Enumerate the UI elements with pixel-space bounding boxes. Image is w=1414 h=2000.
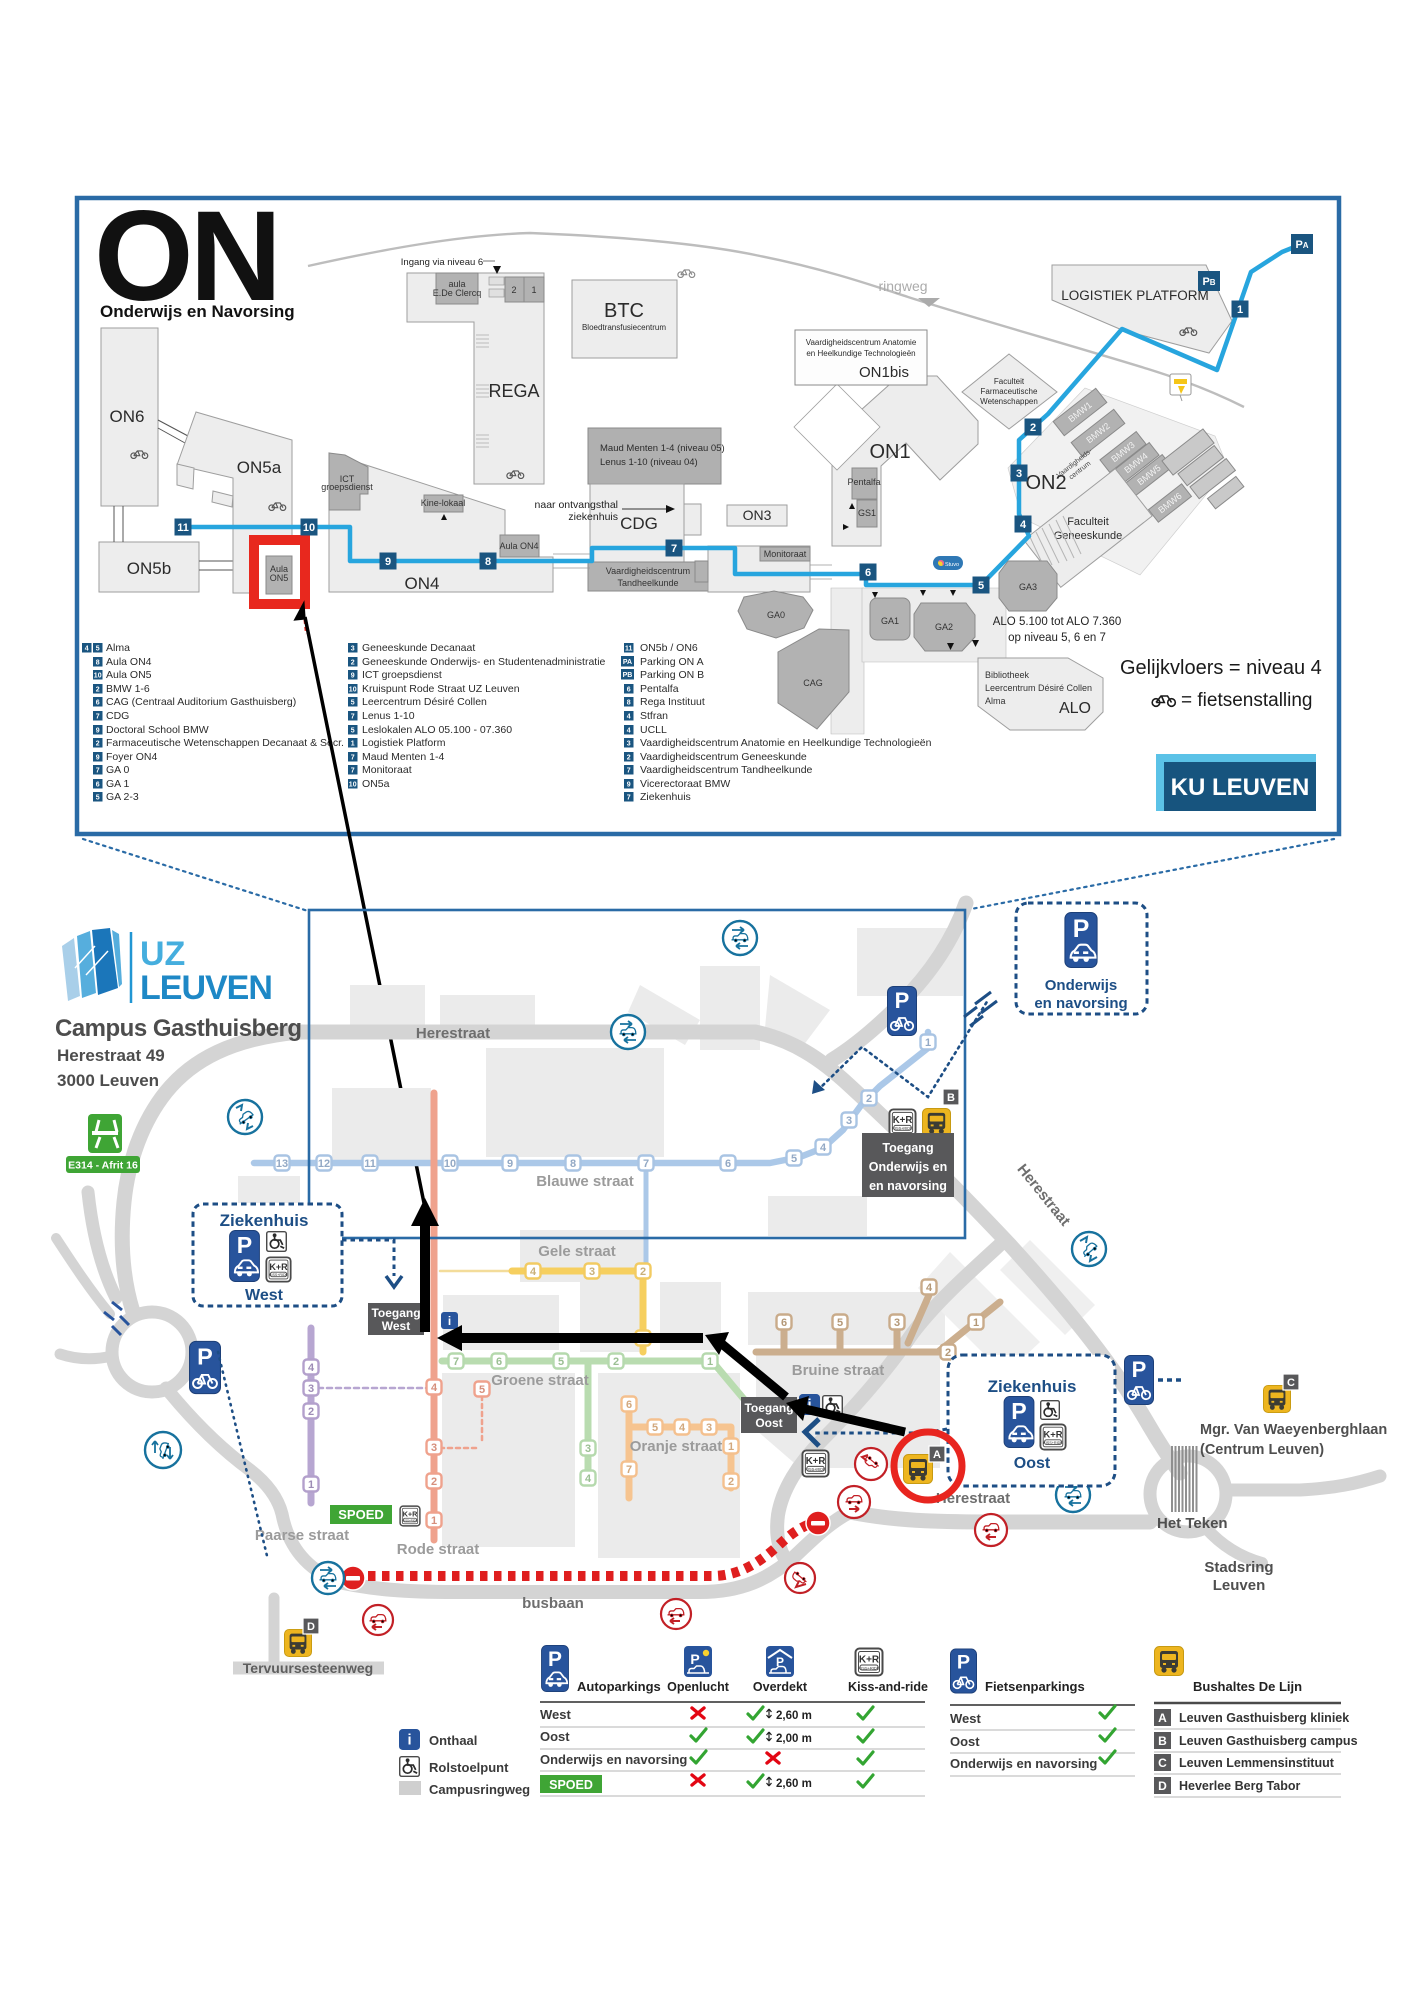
svg-text:Mgr. Van Waeyenberghlaan: Mgr. Van Waeyenberghlaan (1200, 1422, 1387, 1438)
svg-text:Oost: Oost (540, 1729, 570, 1744)
svg-text:8: 8 (96, 660, 100, 667)
svg-text:Leuven Lemmensinstituut: Leuven Lemmensinstituut (1179, 1756, 1335, 1770)
svg-text:4: 4 (820, 1142, 827, 1154)
svg-text:BMW 1-6: BMW 1-6 (106, 683, 150, 695)
svg-text:GA0: GA0 (767, 610, 785, 620)
svg-text:Leuven Gasthuisberg kliniek: Leuven Gasthuisberg kliniek (1179, 1711, 1349, 1725)
svg-text:Onthaal: Onthaal (429, 1733, 477, 1748)
svg-text:6: 6 (96, 700, 100, 707)
svg-text:Maud Menten 1-4 (niveau 05): Maud Menten 1-4 (niveau 05) (600, 443, 725, 454)
svg-text:ICT groepsdienst: ICT groepsdienst (362, 669, 442, 681)
svg-text:10: 10 (444, 1158, 456, 1170)
svg-text:4: 4 (431, 1382, 438, 1394)
svg-text:Vaardigheidscentrum: Vaardigheidscentrum (606, 566, 690, 576)
svg-text:9: 9 (385, 556, 391, 568)
svg-text:Farmaceutische: Farmaceutische (981, 387, 1038, 396)
svg-text:en navorsing: en navorsing (869, 1179, 947, 1193)
svg-text:6: 6 (781, 1317, 787, 1329)
svg-text:7: 7 (351, 755, 355, 762)
svg-text:3: 3 (431, 1442, 437, 1454)
svg-text:Leuven Gasthuisberg campus: Leuven Gasthuisberg campus (1179, 1734, 1358, 1748)
svg-text:Faculteit: Faculteit (994, 377, 1025, 386)
svg-text:Kruispunt Rode Straat UZ Leuve: Kruispunt Rode Straat UZ Leuven (362, 683, 520, 695)
svg-text:ON1: ON1 (869, 441, 910, 463)
svg-text:2: 2 (96, 741, 100, 748)
svg-text:Herestraat: Herestraat (416, 1025, 490, 1042)
svg-text:9: 9 (351, 673, 355, 680)
svg-text:4: 4 (679, 1422, 686, 1434)
svg-text:Tandheelkunde: Tandheelkunde (617, 578, 678, 588)
svg-text:Parking ON B: Parking ON B (640, 669, 704, 681)
svg-text:3: 3 (589, 1266, 595, 1278)
svg-text:11: 11 (177, 522, 189, 534)
svg-text:Vaardigheidscentrum Tandheelku: Vaardigheidscentrum Tandheelkunde (640, 764, 813, 776)
svg-text:ON5b: ON5b (127, 559, 171, 578)
svg-text:6: 6 (626, 1399, 632, 1411)
svg-text:P: P (690, 1651, 699, 1667)
svg-text:4: 4 (85, 646, 89, 653)
svg-text:GA1: GA1 (881, 616, 899, 626)
svg-text:5: 5 (479, 1384, 485, 1396)
svg-text:Onderwijs en Navorsing: Onderwijs en Navorsing (100, 302, 295, 321)
svg-text:Paarse straat: Paarse straat (255, 1527, 349, 1544)
svg-text:7: 7 (643, 1158, 649, 1170)
svg-text:Gele straat: Gele straat (538, 1243, 616, 1260)
svg-text:1: 1 (531, 285, 536, 295)
svg-text:ringweg: ringweg (878, 278, 927, 294)
svg-text:PB: PB (1202, 276, 1215, 288)
svg-text:3: 3 (894, 1317, 900, 1329)
svg-text:C: C (1158, 1756, 1167, 1770)
svg-text:West: West (540, 1707, 571, 1722)
svg-text:D: D (1158, 1779, 1167, 1793)
svg-text:10: 10 (349, 687, 357, 694)
svg-text:Ingang via niveau 6: Ingang via niveau 6 (401, 257, 483, 268)
svg-text:2: 2 (431, 1476, 437, 1488)
svg-text:7: 7 (671, 543, 677, 555)
svg-text:4: 4 (926, 1282, 933, 1294)
svg-text:5: 5 (791, 1153, 797, 1165)
svg-text:4: 4 (627, 714, 631, 721)
svg-text:Wetenschappen: Wetenschappen (980, 397, 1038, 406)
svg-text:West: West (950, 1711, 981, 1726)
svg-text:Campusringweg: Campusringweg (429, 1782, 530, 1797)
svg-text:Vicerectoraat BMW: Vicerectoraat BMW (640, 778, 730, 790)
svg-text:5: 5 (351, 728, 355, 735)
svg-text:Geneeskunde Decanaat: Geneeskunde Decanaat (362, 642, 475, 654)
svg-text:Monitoraat: Monitoraat (362, 764, 412, 776)
svg-text:6: 6 (96, 782, 100, 789)
svg-text:CAG (Centraal Auditorium Gasth: CAG (Centraal Auditorium Gasthuisberg) (106, 696, 296, 708)
svg-text:9: 9 (627, 782, 631, 789)
svg-text:11: 11 (364, 1158, 376, 1170)
svg-text:5: 5 (96, 646, 100, 653)
svg-text:2: 2 (866, 1093, 872, 1105)
svg-text:Onderwijs en: Onderwijs en (869, 1160, 948, 1174)
svg-text:busbaan: busbaan (522, 1595, 584, 1612)
svg-text:KU LEUVEN: KU LEUVEN (1171, 774, 1310, 801)
svg-text:GA 2-3: GA 2-3 (106, 791, 139, 803)
svg-text:Maud Menten 1-4: Maud Menten 1-4 (362, 751, 444, 763)
svg-text:LOGISTIEK PLATFORM: LOGISTIEK PLATFORM (1061, 288, 1209, 303)
svg-text:1: 1 (308, 1479, 314, 1491)
svg-text:Herestraat 49: Herestraat 49 (57, 1046, 165, 1065)
svg-text:4: 4 (627, 728, 631, 735)
svg-text:10: 10 (349, 782, 357, 789)
svg-text:2: 2 (613, 1356, 619, 1368)
svg-text:Onderwijs en navorsing: Onderwijs en navorsing (540, 1752, 687, 1767)
svg-text:en navorsing: en navorsing (1034, 995, 1127, 1012)
svg-text:Onderwijs: Onderwijs (1045, 977, 1118, 994)
svg-text:12: 12 (318, 1158, 330, 1170)
svg-text:Tervuursesteenweg: Tervuursesteenweg (243, 1660, 373, 1676)
svg-text:Vaardigheidscentrum Anatomie: Vaardigheidscentrum Anatomie (806, 338, 917, 347)
svg-text:7: 7 (96, 768, 100, 775)
svg-text:Farmaceutische Wetenschappen D: Farmaceutische Wetenschappen Decanaat & … (106, 737, 344, 749)
svg-text:5: 5 (96, 795, 100, 802)
svg-text:1: 1 (1237, 304, 1243, 316)
svg-text:ON1bis: ON1bis (859, 364, 909, 381)
svg-text:Bushaltes De Lijn: Bushaltes De Lijn (1193, 1679, 1302, 1694)
svg-text:Campus Gasthuisberg: Campus Gasthuisberg (55, 1015, 302, 1042)
svg-text:Geneeskunde Onderwijs- en Stud: Geneeskunde Onderwijs- en Studentenadmin… (362, 656, 606, 668)
svg-text:Oost: Oost (950, 1734, 980, 1749)
svg-text:op niveau 5, 6 en 7: op niveau 5, 6 en 7 (1008, 632, 1106, 644)
svg-text:5: 5 (558, 1356, 564, 1368)
svg-text:LEUVEN: LEUVEN (140, 969, 272, 1007)
svg-text:= fietsenstalling: = fietsenstalling (1181, 690, 1313, 711)
svg-text:ON4: ON4 (405, 574, 440, 593)
svg-text:Oranje straat: Oranje straat (630, 1438, 723, 1455)
svg-text:5: 5 (978, 580, 984, 592)
svg-text:GA 0: GA 0 (106, 764, 130, 776)
svg-text:CAG: CAG (803, 678, 823, 688)
svg-text:Pentalfa: Pentalfa (640, 683, 679, 695)
svg-text:8: 8 (570, 1158, 576, 1170)
svg-text:2: 2 (640, 1266, 646, 1278)
svg-text:Blauwe straat: Blauwe straat (536, 1173, 634, 1190)
svg-text:9: 9 (507, 1158, 513, 1170)
svg-text:2: 2 (511, 285, 516, 295)
svg-text:Lenus 1-10 (niveau 04): Lenus 1-10 (niveau 04) (600, 457, 698, 468)
svg-text:4: 4 (530, 1266, 537, 1278)
svg-text:13: 13 (276, 1158, 288, 1170)
svg-text:3: 3 (706, 1422, 712, 1434)
svg-text:1: 1 (973, 1317, 979, 1329)
svg-text:Autoparkings: Autoparkings (577, 1679, 661, 1694)
svg-text:8: 8 (485, 556, 491, 568)
svg-text:Aula ON4: Aula ON4 (106, 656, 152, 668)
svg-text:GS1: GS1 (858, 508, 876, 518)
svg-text:Stuvo: Stuvo (945, 562, 959, 568)
svg-text:ALO: ALO (1059, 700, 1091, 717)
svg-text:Stfran: Stfran (640, 710, 668, 722)
svg-text:Faculteit: Faculteit (1067, 516, 1109, 528)
svg-text:ON3: ON3 (743, 507, 772, 523)
svg-text:3: 3 (351, 646, 355, 653)
svg-text:1: 1 (707, 1356, 713, 1368)
svg-text:UZ: UZ (140, 935, 185, 973)
svg-text:7: 7 (627, 795, 631, 802)
svg-text:Het Teken: Het Teken (1157, 1515, 1228, 1532)
svg-text:Openlucht: Openlucht (667, 1680, 730, 1694)
svg-text:2,60 m: 2,60 m (776, 1710, 812, 1722)
svg-text:CDG: CDG (620, 514, 658, 533)
svg-text:Pentalfa: Pentalfa (847, 477, 880, 487)
svg-text:3: 3 (846, 1115, 852, 1127)
svg-text:naar ontvangsthal: naar ontvangsthal (535, 499, 618, 511)
svg-text:B: B (947, 1092, 955, 1104)
svg-text:6: 6 (496, 1356, 502, 1368)
svg-text:2,00 m: 2,00 m (776, 1733, 812, 1745)
svg-text:4: 4 (1020, 519, 1027, 531)
svg-text:7: 7 (626, 1464, 632, 1476)
svg-text:6: 6 (865, 567, 871, 579)
svg-text:7: 7 (453, 1356, 459, 1368)
svg-text:Bibliotheek: Bibliotheek (985, 670, 1030, 680)
svg-text:D: D (307, 1621, 315, 1633)
svg-text:GA2: GA2 (935, 622, 953, 632)
svg-text:Rolstoelpunt: Rolstoelpunt (429, 1760, 509, 1775)
svg-text:ALO 5.100 tot ALO 7.360: ALO 5.100 tot ALO 7.360 (993, 616, 1122, 628)
svg-text:3: 3 (627, 741, 631, 748)
svg-text:REGA: REGA (488, 381, 539, 401)
svg-text:5: 5 (652, 1422, 658, 1434)
svg-text:Oost: Oost (1014, 1455, 1051, 1472)
svg-text:Stadsring: Stadsring (1204, 1559, 1273, 1576)
svg-text:SPOED: SPOED (549, 1778, 593, 1792)
svg-text:BTC: BTC (604, 300, 644, 322)
svg-text:1: 1 (351, 741, 355, 748)
svg-text:Leercentrum Désiré Collen: Leercentrum Désiré Collen (985, 683, 1092, 693)
svg-text:en Heelkundige Technologieën: en Heelkundige Technologieën (806, 349, 915, 358)
svg-text:Kine-lokaal: Kine-lokaal (421, 498, 466, 508)
svg-text:GA3: GA3 (1019, 582, 1037, 592)
svg-text:PB: PB (623, 672, 633, 679)
svg-text:11: 11 (625, 646, 633, 653)
svg-text:Doctoral School BMW: Doctoral School BMW (106, 724, 209, 736)
svg-text:Gelijkvloers = niveau 4: Gelijkvloers = niveau 4 (1120, 657, 1322, 679)
svg-text:Alma: Alma (985, 696, 1006, 706)
svg-text:C: C (1287, 1377, 1295, 1389)
svg-text:3: 3 (308, 1383, 314, 1395)
svg-text:Vaardigheidscentrum Anatomie e: Vaardigheidscentrum Anatomie en Heelkund… (640, 737, 932, 749)
svg-text:E314 - Afrit 16: E314 - Afrit 16 (68, 1160, 138, 1172)
svg-text:6: 6 (725, 1158, 731, 1170)
svg-text:3: 3 (585, 1443, 591, 1455)
svg-text:8: 8 (627, 700, 631, 707)
svg-text:ON5: ON5 (270, 573, 289, 583)
svg-text:9: 9 (96, 728, 100, 735)
svg-text:4: 4 (308, 1362, 315, 1374)
svg-text:Parking ON A: Parking ON A (640, 656, 704, 668)
svg-text:Ziekenhuis: Ziekenhuis (220, 1211, 309, 1230)
svg-text:Ziekenhuis: Ziekenhuis (640, 791, 691, 803)
svg-text:Bloedtransfusiecentrum: Bloedtransfusiecentrum (582, 323, 666, 332)
svg-text:GA 1: GA 1 (106, 778, 130, 790)
svg-text:A: A (1158, 1711, 1167, 1725)
svg-text:2: 2 (351, 660, 355, 667)
svg-text:Leslokalen ALO 05.100 - 07.360: Leslokalen ALO 05.100 - 07.360 (362, 724, 512, 736)
svg-text:5: 5 (351, 700, 355, 707)
svg-text:Onderwijs en navorsing: Onderwijs en navorsing (950, 1756, 1097, 1771)
svg-text:ON2: ON2 (1025, 472, 1066, 494)
svg-text:Aula ON5: Aula ON5 (106, 669, 152, 681)
svg-text:ON5b / ON6: ON5b / ON6 (640, 642, 698, 654)
svg-text:ON6: ON6 (110, 407, 145, 426)
svg-text:1: 1 (431, 1515, 437, 1527)
svg-text:2,60 m: 2,60 m (776, 1778, 812, 1790)
svg-text:UCLL: UCLL (640, 724, 667, 736)
svg-text:Lenus 1-10: Lenus 1-10 (362, 710, 415, 722)
svg-text:Monitoraat: Monitoraat (764, 549, 807, 559)
svg-text:(Centrum Leuven): (Centrum Leuven) (1200, 1442, 1324, 1458)
svg-text:ziekenhuis: ziekenhuis (568, 511, 618, 523)
svg-text:2: 2 (96, 687, 100, 694)
svg-text:Kiss-and-ride: Kiss-and-ride (848, 1680, 928, 1694)
svg-text:7: 7 (351, 768, 355, 775)
svg-text:2: 2 (945, 1347, 951, 1359)
svg-text:CDG: CDG (106, 710, 129, 722)
svg-text:Bruine straat: Bruine straat (792, 1362, 885, 1379)
svg-text:2: 2 (627, 755, 631, 762)
svg-text:A: A (933, 1449, 941, 1461)
svg-text:ON5a: ON5a (362, 778, 390, 790)
svg-text:6: 6 (627, 687, 631, 694)
svg-text:5: 5 (837, 1317, 843, 1329)
svg-text:Heverlee Berg Tabor: Heverlee Berg Tabor (1179, 1779, 1300, 1793)
svg-text:Leuven: Leuven (1213, 1577, 1266, 1594)
svg-text:Foyer ON4: Foyer ON4 (106, 751, 158, 763)
svg-text:West: West (382, 1319, 410, 1333)
svg-text:1: 1 (728, 1441, 734, 1453)
svg-text:Toegang: Toegang (882, 1141, 933, 1155)
svg-text:PA: PA (623, 659, 632, 666)
svg-text:Fietsenparkings: Fietsenparkings (985, 1679, 1085, 1694)
svg-text:3000 Leuven: 3000 Leuven (57, 1071, 159, 1090)
svg-text:Oost: Oost (755, 1416, 782, 1430)
svg-text:7: 7 (351, 714, 355, 721)
svg-text:Alma: Alma (106, 642, 130, 654)
svg-text:9: 9 (96, 755, 100, 762)
svg-text:Toegang: Toegang (371, 1306, 420, 1320)
svg-text:Logistiek Platform: Logistiek Platform (362, 737, 446, 749)
svg-text:Rode straat: Rode straat (397, 1541, 480, 1558)
svg-text:Leercentrum Désiré Collen: Leercentrum Désiré Collen (362, 696, 487, 708)
svg-text:ON5a: ON5a (237, 458, 282, 477)
svg-text:3: 3 (1016, 468, 1022, 480)
svg-text:10: 10 (94, 673, 102, 680)
svg-text:Overdekt: Overdekt (753, 1680, 808, 1694)
svg-text:Groene straat: Groene straat (491, 1372, 589, 1389)
svg-text:1: 1 (925, 1037, 931, 1049)
svg-text:4: 4 (585, 1473, 592, 1485)
svg-text:2: 2 (308, 1406, 314, 1418)
svg-text:2: 2 (1030, 422, 1036, 434)
svg-text:B: B (1158, 1734, 1167, 1748)
svg-text:groepsdienst: groepsdienst (321, 482, 373, 492)
svg-text:7: 7 (627, 768, 631, 775)
svg-text:Aula ON4: Aula ON4 (499, 541, 538, 551)
svg-text:2: 2 (728, 1476, 734, 1488)
svg-text:PA: PA (1295, 239, 1308, 251)
svg-text:Vaardigheidscentrum Geneeskund: Vaardigheidscentrum Geneeskunde (640, 751, 807, 763)
svg-text:SPOED: SPOED (338, 1507, 384, 1522)
svg-text:10: 10 (303, 522, 315, 534)
svg-text:West: West (245, 1287, 284, 1304)
svg-text:Ziekenhuis: Ziekenhuis (988, 1377, 1077, 1396)
svg-text:7: 7 (96, 714, 100, 721)
svg-text:Rega Instituut: Rega Instituut (640, 696, 705, 708)
svg-text:E.De Clercq: E.De Clercq (433, 288, 482, 298)
